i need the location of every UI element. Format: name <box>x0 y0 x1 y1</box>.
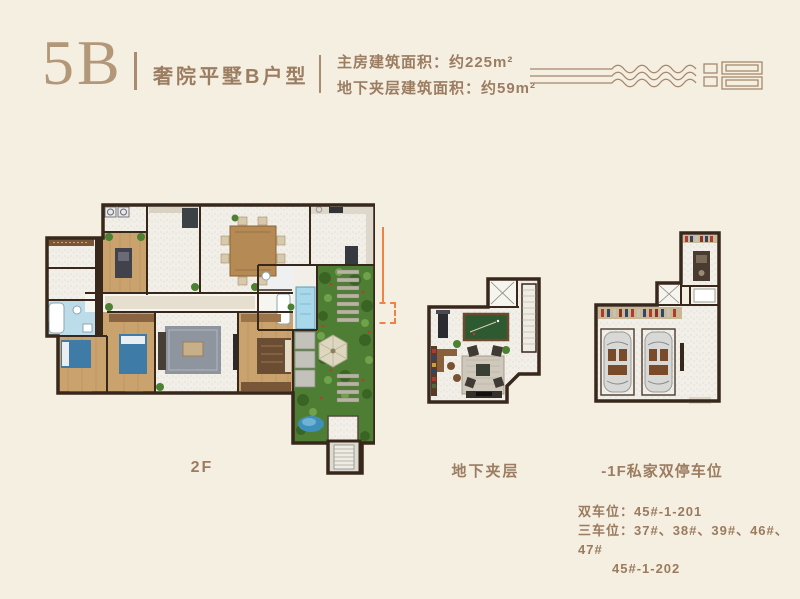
triple-spot-line2: 45#-1-202 <box>578 559 800 578</box>
divider <box>134 52 137 90</box>
decorative-wave-lines <box>528 56 766 92</box>
brand-seal-icon <box>704 62 762 89</box>
garden-stairs <box>328 441 360 473</box>
plan-label-mezzanine: 地下夹层 <box>428 460 543 481</box>
car-2 <box>645 332 672 392</box>
lap-pool <box>293 265 317 330</box>
basement-area-text: 地下夹层建筑面积：约59m² <box>337 77 536 98</box>
billiard-table <box>464 314 508 340</box>
floorplan-poster: 5B 奢院平墅B户型 主房建筑面积：约225m² 地下夹层建筑面积：约59m² … <box>0 0 800 599</box>
unit-name-title: 奢院平墅B户型 <box>153 60 308 89</box>
stone-paving <box>295 332 315 387</box>
plan-label-parking: -1F私家双停车位 <box>598 460 726 481</box>
floor-plan-mezzanine-drawing <box>424 274 546 410</box>
plan-label-2f: 2F <box>172 459 232 477</box>
unit-code: 5B <box>42 30 123 96</box>
car-1 <box>604 332 631 392</box>
parking-assignment-info: 双车位：45#-1-201 三车位：37#、38#、39#、46#、47# 45… <box>578 502 800 578</box>
triple-spot-line: 三车位：37#、38#、39#、46#、47# <box>578 521 800 559</box>
double-spot-line: 双车位：45#-1-201 <box>578 502 800 521</box>
divider <box>319 55 321 93</box>
note-pointer-line <box>382 227 384 303</box>
main-area-text: 主房建筑面积：约225m² <box>337 51 536 72</box>
garage-storage <box>598 307 682 319</box>
floor-plan-2f-drawing <box>45 188 375 475</box>
area-info: 主房建筑面积：约225m² 地下夹层建筑面积：约59m² <box>337 51 536 98</box>
floor-plan-parking-drawing <box>593 231 727 408</box>
